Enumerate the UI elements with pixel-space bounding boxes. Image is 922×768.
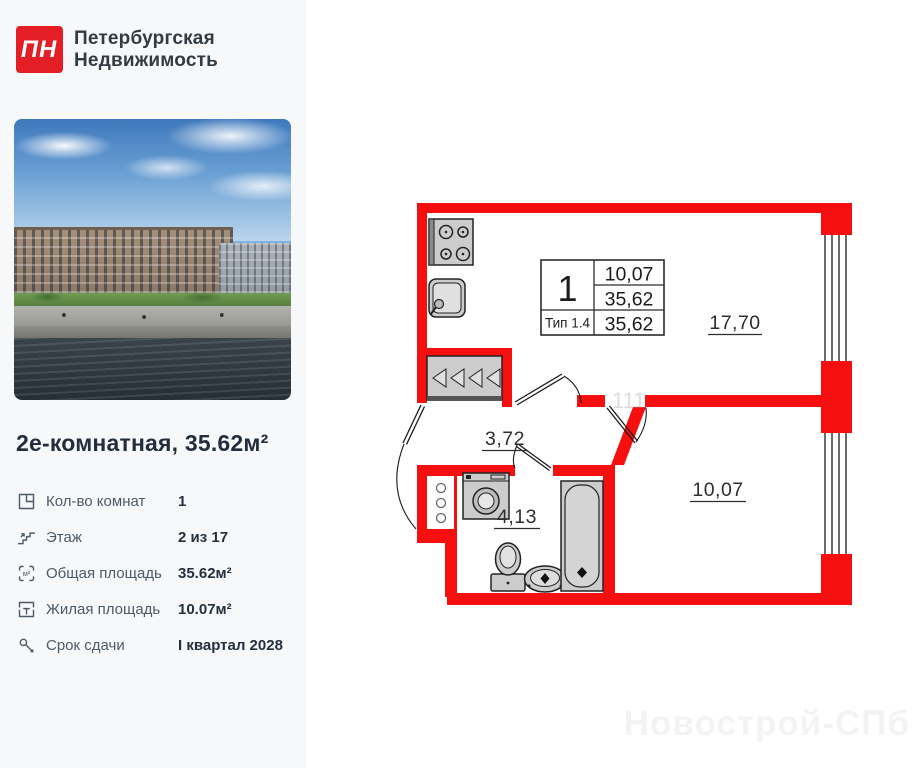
shaft-icon xyxy=(437,484,446,523)
spec-label: Этаж xyxy=(46,529,178,546)
spec-row-total-area: м² Общая площадь 35.62м² xyxy=(0,555,306,591)
window-living xyxy=(825,235,846,361)
photo-building-main xyxy=(14,227,233,293)
photo-sky xyxy=(14,119,291,241)
rooms-icon xyxy=(16,491,37,512)
page-watermark: Новострой-СПб xyxy=(624,704,910,744)
stamp-row2: 35,62 xyxy=(605,289,654,311)
room-label-living: 17,70 xyxy=(709,312,760,334)
brand-name-line2: Недвижимость xyxy=(74,50,218,72)
sidebar: ПН Петербургская Недвижимость 2е-комнатн… xyxy=(0,0,306,768)
room-label-bedroom: 10,07 xyxy=(692,479,743,501)
area-stamp: 1 Тип 1.4 10,07 35,62 35,62 xyxy=(541,260,664,336)
spec-label: Общая площадь xyxy=(46,565,178,582)
spec-list: Кол-во комнат 1 Этаж 2 из 17 м² Общая пл… xyxy=(0,483,306,663)
brand-name: Петербургская Недвижимость xyxy=(74,28,218,72)
living-area-icon xyxy=(16,599,37,620)
kitchen-sink-icon xyxy=(429,279,465,317)
room-label-bathroom: 4,13 xyxy=(497,506,537,528)
spec-value: 35.62м² xyxy=(178,565,290,582)
spec-value: 1 xyxy=(178,493,290,510)
bathtub-icon xyxy=(561,481,603,591)
spec-label: Кол-во комнат xyxy=(46,493,178,510)
spec-row-living-area: Жилая площадь 10.07м² xyxy=(0,591,306,627)
photo-promenade xyxy=(14,306,291,326)
toilet-icon xyxy=(491,543,525,591)
spec-label: Жилая площадь xyxy=(46,601,178,618)
photo-building-right xyxy=(219,243,291,293)
building-photo xyxy=(14,119,291,400)
photo-lawn xyxy=(14,293,291,306)
brand-logo-text: ПН xyxy=(19,36,61,64)
wardrobe-icon xyxy=(427,356,502,400)
photo-embankment xyxy=(14,326,291,338)
key-icon xyxy=(16,635,37,656)
faint-mark: 111 xyxy=(612,388,645,413)
stamp-type: Тип 1.4 xyxy=(545,316,591,331)
spec-row-rooms: Кол-во комнат 1 xyxy=(0,483,306,519)
stamp-row3: 35,62 xyxy=(605,314,654,336)
living-room-door xyxy=(515,374,581,405)
stamp-rooms: 1 xyxy=(557,268,577,309)
room-label-hallway: 3,72 xyxy=(485,428,525,450)
total-area-icon: м² xyxy=(16,563,37,584)
brand-header: ПН Петербургская Недвижимость xyxy=(0,0,306,91)
floor-icon xyxy=(16,527,37,548)
floor-plan: 1 Тип 1.4 10,07 35,62 35,62 17,70 3,72 4… xyxy=(393,193,855,615)
spec-value: 2 из 17 xyxy=(178,529,290,546)
listing-title: 2е-комнатная, 35.62м² xyxy=(16,430,296,457)
spec-row-floor: Этаж 2 из 17 xyxy=(0,519,306,555)
photo-water xyxy=(14,338,291,400)
spec-value: 10.07м² xyxy=(178,601,290,618)
svg-text:м²: м² xyxy=(23,569,31,578)
brand-name-line1: Петербургская xyxy=(74,28,218,50)
spec-row-completion: Срок сдачи I квартал 2028 xyxy=(0,627,306,663)
stove-icon xyxy=(429,219,473,265)
spec-label: Срок сдачи xyxy=(46,637,178,654)
brand-logo-icon: ПН xyxy=(16,26,63,73)
washbasin-icon xyxy=(525,566,566,592)
spec-value: I квартал 2028 xyxy=(178,637,290,654)
stamp-row1: 10,07 xyxy=(605,264,654,286)
window-bedroom xyxy=(825,433,846,554)
